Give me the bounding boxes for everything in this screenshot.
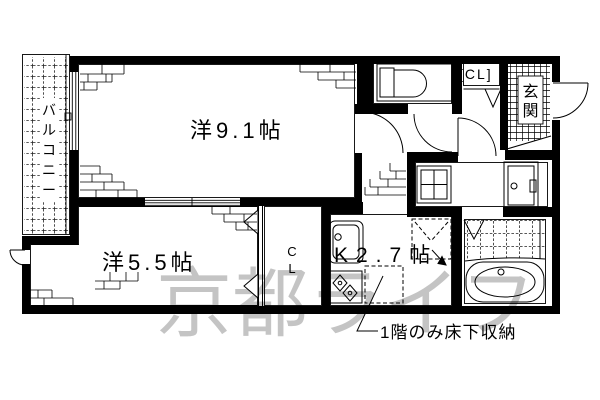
entrance-label-char: 関	[522, 103, 538, 120]
balcony-label-char: ル	[42, 122, 56, 138]
balcony-label-char: ニ	[42, 162, 56, 178]
floorplan-svg: 京都ライフ	[0, 0, 600, 400]
room-9-1-label: 洋9.1帖	[190, 118, 285, 143]
closet-5-5-label-char: C	[287, 244, 296, 259]
balcony-label-char: バ	[42, 102, 56, 118]
kitchen-label: K2.7帖	[334, 244, 438, 267]
closet-hall-label: [CL]	[459, 66, 493, 82]
floorplan: 京都ライフ	[0, 0, 600, 400]
balcony-label-char: コ	[42, 142, 56, 158]
underfloor-note-label: 1階のみ床下収納	[380, 323, 516, 342]
entrance-label-char: 玄	[522, 83, 538, 101]
bath-floor-hatch	[465, 220, 545, 259]
balcony-label: バ ル コ ニ ー	[42, 102, 56, 198]
room-5-5-label: 洋5.5帖	[102, 250, 197, 275]
closet-5-5-label-char: L	[288, 261, 295, 276]
balcony-label-char: ー	[42, 182, 56, 198]
